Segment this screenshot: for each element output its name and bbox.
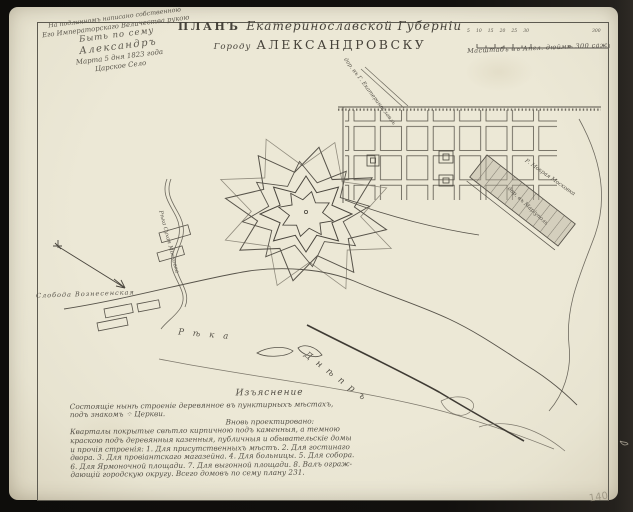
sloboda-buildings xyxy=(97,225,191,331)
tick-label: 15 xyxy=(488,29,494,34)
photograph-of-map: ПЛАНЪЕкатеринославской Губерніи ГородуАЛ… xyxy=(0,0,633,512)
scale-tick-labels: 5 10 15 20 25 30 xyxy=(467,29,529,34)
pencil-squiggle xyxy=(620,441,628,445)
north-arrow xyxy=(53,240,125,288)
tick-label: 30 xyxy=(523,29,529,34)
title-city: АЛЕКСАНДРОВСКУ xyxy=(256,37,426,52)
scale-end-label: 300 xyxy=(592,29,601,34)
tick-label: 10 xyxy=(476,29,482,34)
tick-label: 25 xyxy=(511,29,517,34)
title-region: Екатеринославской Губерніи xyxy=(246,19,462,33)
tick-label: 20 xyxy=(500,29,506,34)
tick-label: 5 xyxy=(467,29,470,34)
legend-block: Изъяснение Состоящіе нынѣ строеніе дерев… xyxy=(70,386,471,480)
